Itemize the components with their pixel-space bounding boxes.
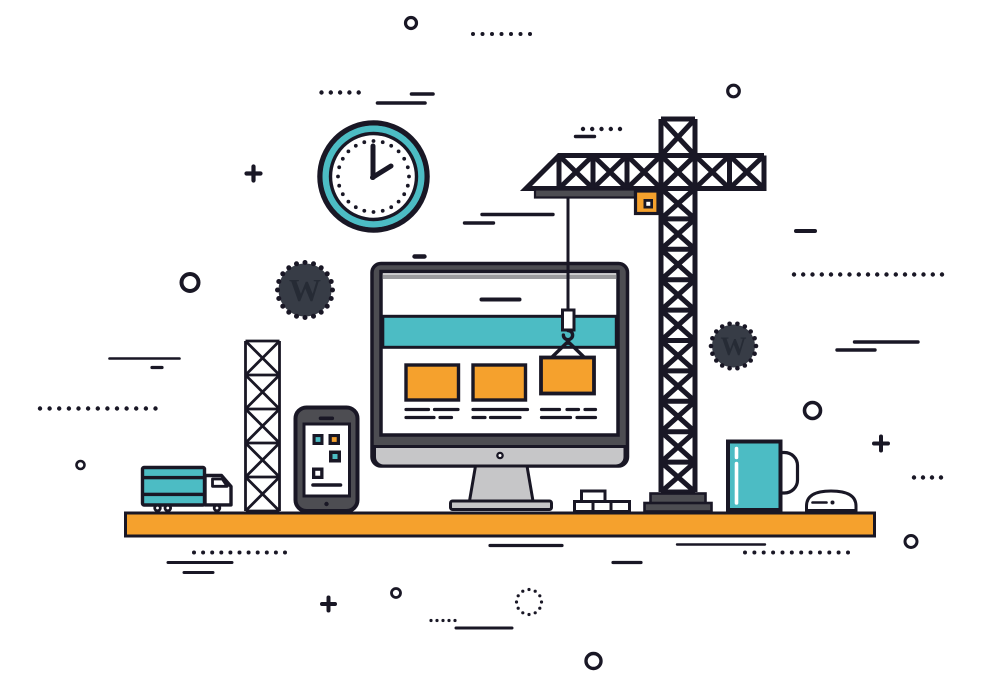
svg-text:W: W	[721, 332, 747, 361]
svg-text:W: W	[289, 272, 321, 308]
